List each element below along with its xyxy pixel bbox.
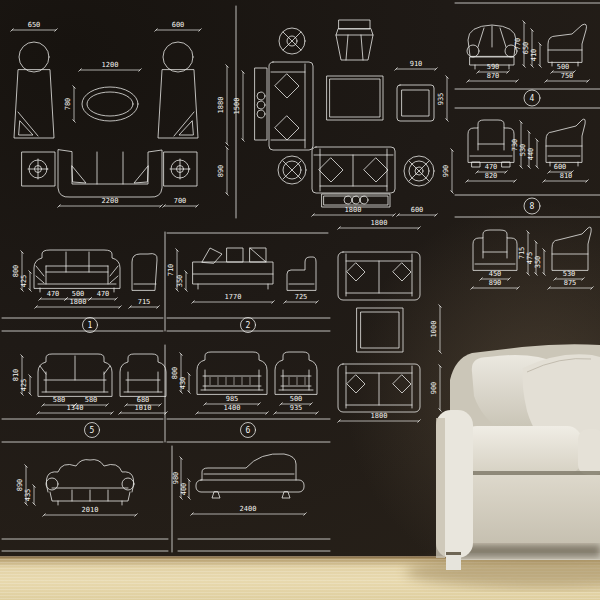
- dim-label: 900: [430, 382, 438, 395]
- sofa-front-elevation: [193, 248, 273, 289]
- dim-label: 440: [527, 148, 535, 161]
- dim-label: 435: [24, 489, 32, 502]
- armchair-plan-right: [158, 42, 198, 138]
- sofa-plan-2200: [58, 150, 162, 197]
- dim-label: 1200: [102, 61, 119, 69]
- armchair-side-elevation: [548, 24, 587, 66]
- section-number: 4: [530, 94, 535, 103]
- sofa-plan-1800: [312, 147, 395, 193]
- chaise-elevation: [196, 454, 304, 498]
- lamp-plan-icon: [279, 28, 305, 54]
- armchair-front-elevation: [468, 120, 514, 167]
- square-table-plan: [357, 308, 403, 352]
- plan-living-set-b: 1500 910 9: [233, 20, 452, 215]
- sofa-plan-vertical: [269, 62, 313, 150]
- dim-label: 710: [167, 264, 175, 277]
- dim-label: 1000: [430, 321, 438, 338]
- sofa-side-elevation: [287, 257, 316, 290]
- loveseat-front-elevation: [38, 354, 112, 396]
- dim-label: 725: [295, 293, 308, 301]
- dim-label: 680: [137, 396, 150, 404]
- dim-label: 810: [560, 172, 573, 180]
- dim-label: 935: [290, 404, 303, 412]
- dim-label: 590: [487, 63, 500, 71]
- sofa-side-elevation: [132, 254, 157, 290]
- dim-label: 450: [489, 270, 502, 278]
- section-number: 8: [530, 202, 535, 211]
- sofa-section-2: 1770 710 350 725 2: [167, 248, 330, 333]
- dim-label: 770: [514, 38, 522, 51]
- dim-label: 2400: [240, 505, 257, 513]
- dim-label: 350: [176, 275, 184, 288]
- armchair-set-right-3: 450 890 715 475 350 530 875: [472, 227, 592, 288]
- armchair-front-elevation: [120, 354, 166, 396]
- dim-label: 1800: [70, 298, 87, 306]
- dim-label: 470: [47, 290, 60, 298]
- cad-drawing-layer: 650 600 1200 780: [0, 0, 600, 600]
- white-sofa-photo: [405, 344, 600, 588]
- furniture-cad-wall-scene: 650 600 1200 780: [0, 0, 600, 600]
- dim-label: 715: [518, 247, 526, 260]
- dim-label: 430: [179, 377, 187, 390]
- armchair-side-elevation: [546, 119, 585, 166]
- dim-label: 750: [561, 72, 574, 80]
- armchair-elevation-small: [336, 20, 373, 60]
- dim-label: 1800: [371, 219, 388, 227]
- dim-label: 530: [563, 270, 576, 278]
- dim-label: 475: [526, 252, 534, 265]
- armchair-plan-small: [397, 85, 434, 121]
- dim-label: 530: [519, 144, 527, 157]
- dim-label: 870: [487, 72, 500, 80]
- dim-label: 2010: [82, 506, 99, 514]
- dim-label: 1500: [233, 98, 241, 115]
- dim-label: 600: [554, 163, 567, 171]
- dim-label: 350: [534, 256, 542, 269]
- dim-label: 820: [485, 172, 498, 180]
- dim-label: 400: [180, 483, 188, 496]
- dim-label: 715: [138, 298, 151, 306]
- side-table-lamp-left: [22, 152, 55, 186]
- dim-label: 1010: [135, 404, 152, 412]
- side-table-lamp-right: [164, 152, 197, 186]
- dim-label: 800: [12, 265, 20, 278]
- armchair-set-8: 470 820 730 530 440 600 810 8: [455, 119, 600, 217]
- dim-label: 470: [97, 290, 110, 298]
- dim-label: 580: [53, 396, 66, 404]
- oval-table-plan: [82, 87, 138, 121]
- dim-label: 1800: [371, 412, 388, 420]
- dim-label: 1400: [224, 404, 241, 412]
- armchair-front-elevation: [473, 230, 517, 270]
- dim-label: 650: [522, 42, 530, 55]
- dim-label: 500: [557, 63, 570, 71]
- section-number: 1: [88, 321, 93, 330]
- sofa-plan-bottom: [338, 364, 420, 412]
- chaise-bottom-center: 2400 980 400: [172, 454, 330, 551]
- sofa-base-shadow: [458, 545, 600, 557]
- plan-living-set-a: 650 600 1200 780: [12, 21, 227, 206]
- dim-label: 1340: [67, 404, 84, 412]
- dim-label: 425: [20, 275, 28, 288]
- dim-label: 2200: [102, 197, 119, 205]
- dim-label: 980: [172, 472, 180, 485]
- dim-label: 500: [72, 290, 85, 298]
- sofa-bottom-left: 2010 890 435: [2, 460, 168, 551]
- armchair-front-elevation: [275, 352, 317, 394]
- dim-label: 1800: [345, 206, 362, 214]
- loveseat-front-elevation: [197, 352, 267, 394]
- dim-label: 730: [511, 139, 519, 152]
- sofa-front-elevation: [34, 250, 120, 292]
- armchair-set-4: 590 870 770 650 410 500 750 4: [455, 3, 600, 108]
- ornate-sofa-elevation: [46, 460, 134, 505]
- dim-label: 810: [12, 369, 20, 382]
- section-number: 5: [90, 426, 95, 435]
- dim-label: 1770: [225, 293, 242, 301]
- section-number: 6: [246, 426, 251, 435]
- dim-label: 650: [28, 21, 41, 29]
- plan-sofa-column: 1800 1000 900 1800: [338, 219, 440, 421]
- sofa-armrest-shade: [436, 418, 445, 558]
- sofa-seat-cushion-right: [578, 429, 600, 475]
- sofa-section-6: 985 1400 800 430 500 935 6: [167, 352, 330, 442]
- sofa-seat-cushion-left: [462, 426, 582, 474]
- dim-label: 800: [171, 367, 179, 380]
- dim-label: 500: [290, 395, 303, 403]
- console-table-plan: [255, 68, 267, 140]
- sofa-section-5: 580 580 1340 810 425 680 1010 5: [2, 354, 166, 442]
- dim-label: 1880: [217, 97, 225, 114]
- dim-label: 600: [411, 206, 424, 214]
- dim-label: 890: [16, 479, 24, 492]
- sofa-plan-top: [338, 252, 420, 300]
- dim-label: 780: [64, 98, 72, 111]
- sofa-leg-gap: [446, 552, 461, 555]
- section-number: 2: [246, 321, 251, 330]
- dim-label: 425: [20, 379, 28, 392]
- dim-label: 700: [174, 197, 187, 205]
- lamp-plan-icon: [278, 156, 306, 184]
- armchair-plan-left: [14, 42, 54, 138]
- dim-label: 580: [85, 396, 98, 404]
- dim-label: 875: [564, 279, 577, 287]
- lamp-plan-icon: [404, 156, 434, 186]
- dim-label: 990: [442, 165, 450, 178]
- square-table-plan: [327, 76, 383, 120]
- dim-label: 935: [437, 93, 445, 106]
- sofa-base: [458, 475, 600, 553]
- dim-label: 910: [410, 60, 423, 68]
- dim-label: 470: [485, 163, 498, 171]
- armchair-side-elevation: [552, 227, 591, 270]
- dim-label: 410: [530, 49, 538, 62]
- dim-label: 600: [172, 21, 185, 29]
- dim-label: 890: [217, 165, 225, 178]
- sofa-floor-shadow: [405, 556, 600, 588]
- dim-label: 890: [489, 279, 502, 287]
- dim-label: 985: [226, 395, 239, 403]
